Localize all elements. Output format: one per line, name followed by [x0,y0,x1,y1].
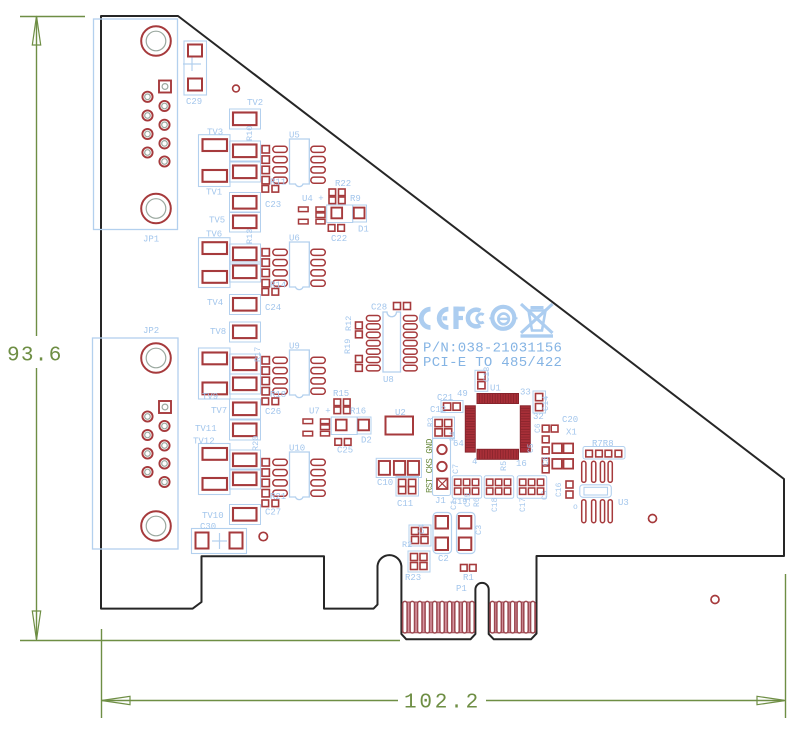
svg-text:U1: U1 [490,384,501,394]
svg-text:U7 +: U7 + [309,407,331,417]
svg-text:P1: P1 [456,584,467,594]
svg-text:R23: R23 [405,573,421,583]
svg-text:R10: R10 [245,126,255,141]
svg-text:o: o [573,503,578,512]
svg-text:U10: U10 [289,444,305,454]
svg-text:TV8: TV8 [210,327,226,337]
svg-text:4: 4 [472,457,477,467]
svg-text:R17: R17 [253,347,263,362]
svg-text:TV7: TV7 [211,406,227,416]
svg-text:TV10: TV10 [202,511,224,521]
svg-text:J1: J1 [435,496,446,506]
svg-text:R19: R19 [343,339,353,354]
svg-text:TV12: TV12 [193,437,215,447]
svg-text:C16: C16 [555,482,564,497]
svg-text:U5: U5 [289,131,300,141]
svg-text:C3: C3 [474,525,484,535]
svg-text:R13: R13 [245,229,255,244]
svg-text:R15: R15 [333,389,349,399]
svg-text:C6: C6 [534,423,543,433]
svg-text:TV2: TV2 [247,98,263,108]
svg-text:C22: C22 [331,234,347,244]
svg-text:C8: C8 [542,456,551,466]
svg-text:R3: R3 [427,417,436,427]
svg-text:JP1: JP1 [143,235,159,245]
svg-text:16: 16 [516,459,527,469]
svg-text:PCI-E TO 485/422: PCI-E TO 485/422 [423,355,562,371]
svg-text:TV11: TV11 [195,424,217,434]
svg-text:D1: D1 [358,225,369,235]
svg-text:R5: R5 [499,461,509,471]
svg-text:JP2: JP2 [143,326,159,336]
svg-text:C10: C10 [377,478,393,488]
svg-text:U9: U9 [289,342,300,352]
svg-text:C28: C28 [371,303,387,313]
svg-text:TV1: TV1 [206,188,222,198]
svg-text:C27: C27 [265,508,281,518]
svg-text:R7R8: R7R8 [592,439,614,449]
svg-text:C17: C17 [519,497,528,512]
svg-text:R12: R12 [344,316,354,331]
svg-text:C23: C23 [265,200,281,210]
svg-text:R18: R18 [270,390,286,400]
svg-text:C30: C30 [200,522,216,532]
svg-text:R16: R16 [350,407,366,417]
svg-text:R1: R1 [463,573,474,583]
svg-text:C21: C21 [437,393,453,403]
svg-text:TV3: TV3 [207,128,223,138]
svg-text:U6: U6 [289,234,300,244]
svg-text:102.2: 102.2 [404,692,481,715]
svg-text:C15: C15 [464,492,473,507]
svg-text:TV6: TV6 [206,230,222,240]
svg-text:C5: C5 [527,443,536,453]
svg-text:C2: C2 [438,554,449,564]
svg-text:U3: U3 [618,498,629,508]
svg-text:R9: R9 [350,194,361,204]
svg-text:C25: C25 [337,446,353,456]
svg-text:R11: R11 [270,178,286,188]
svg-text:49: 49 [457,389,468,399]
svg-text:R22: R22 [335,179,351,189]
svg-text:TV5: TV5 [209,216,225,226]
svg-text:C29: C29 [186,97,202,107]
svg-text:C18: C18 [491,497,500,512]
svg-text:C24: C24 [265,303,281,313]
svg-text:R2: R2 [402,540,412,550]
svg-text:R14: R14 [270,281,286,291]
svg-text:D2: D2 [361,436,372,446]
svg-text:C20: C20 [562,415,578,425]
svg-text:U8: U8 [383,375,394,385]
svg-text:TV9: TV9 [202,392,218,402]
svg-text:C7: C7 [451,464,461,474]
svg-text:33: 33 [520,388,531,398]
svg-text:RST CKS GND: RST CKS GND [425,439,435,493]
svg-text:C11: C11 [397,499,413,509]
svg-text:C26: C26 [265,407,281,417]
svg-text:R21: R21 [270,492,286,502]
svg-text:U4 +: U4 + [302,194,324,204]
svg-text:R20: R20 [251,436,261,451]
svg-text:93.6: 93.6 [7,345,63,368]
svg-text:X1: X1 [566,428,577,438]
svg-text:TV4: TV4 [207,298,223,308]
svg-text:C12: C12 [430,405,446,415]
